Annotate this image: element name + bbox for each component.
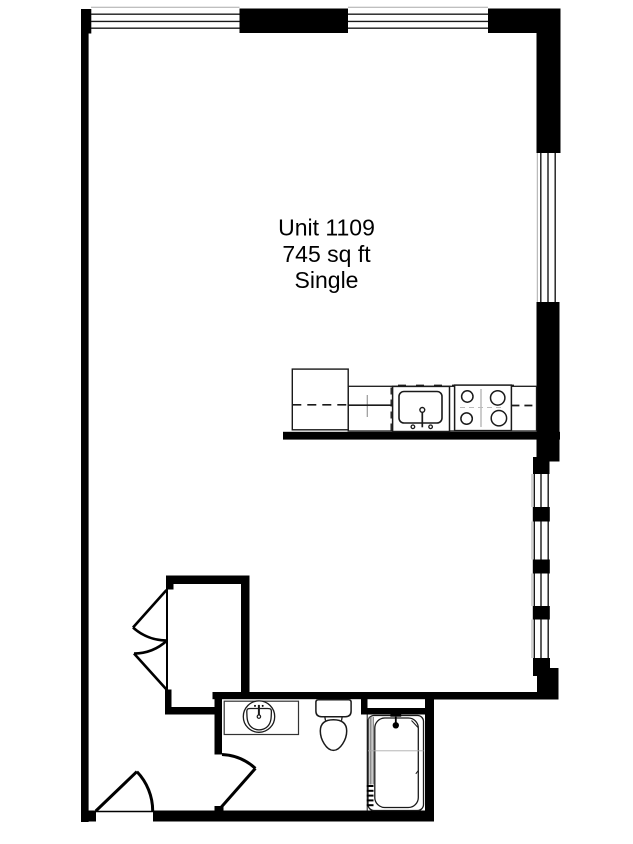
svg-text:745 sq ft: 745 sq ft — [282, 241, 371, 267]
svg-text:Single: Single — [295, 267, 359, 293]
svg-text:Unit 1109: Unit 1109 — [278, 215, 375, 241]
